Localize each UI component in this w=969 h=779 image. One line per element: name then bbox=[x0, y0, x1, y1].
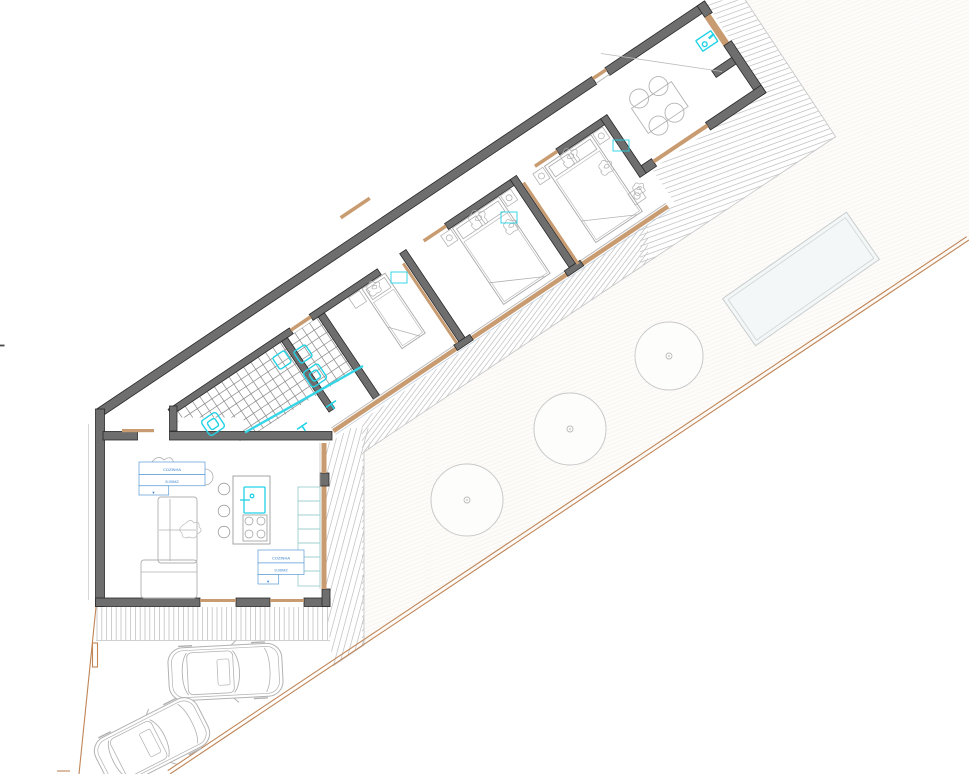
svg-text:COZINHA: COZINHA bbox=[272, 556, 290, 561]
svg-text:9.00M2: 9.00M2 bbox=[274, 567, 288, 572]
svg-text:COZINHA: COZINHA bbox=[163, 467, 181, 472]
svg-text:8.00M2: 8.00M2 bbox=[165, 479, 179, 484]
svg-text:▼: ▼ bbox=[266, 579, 270, 584]
svg-text:▼: ▼ bbox=[152, 490, 156, 495]
